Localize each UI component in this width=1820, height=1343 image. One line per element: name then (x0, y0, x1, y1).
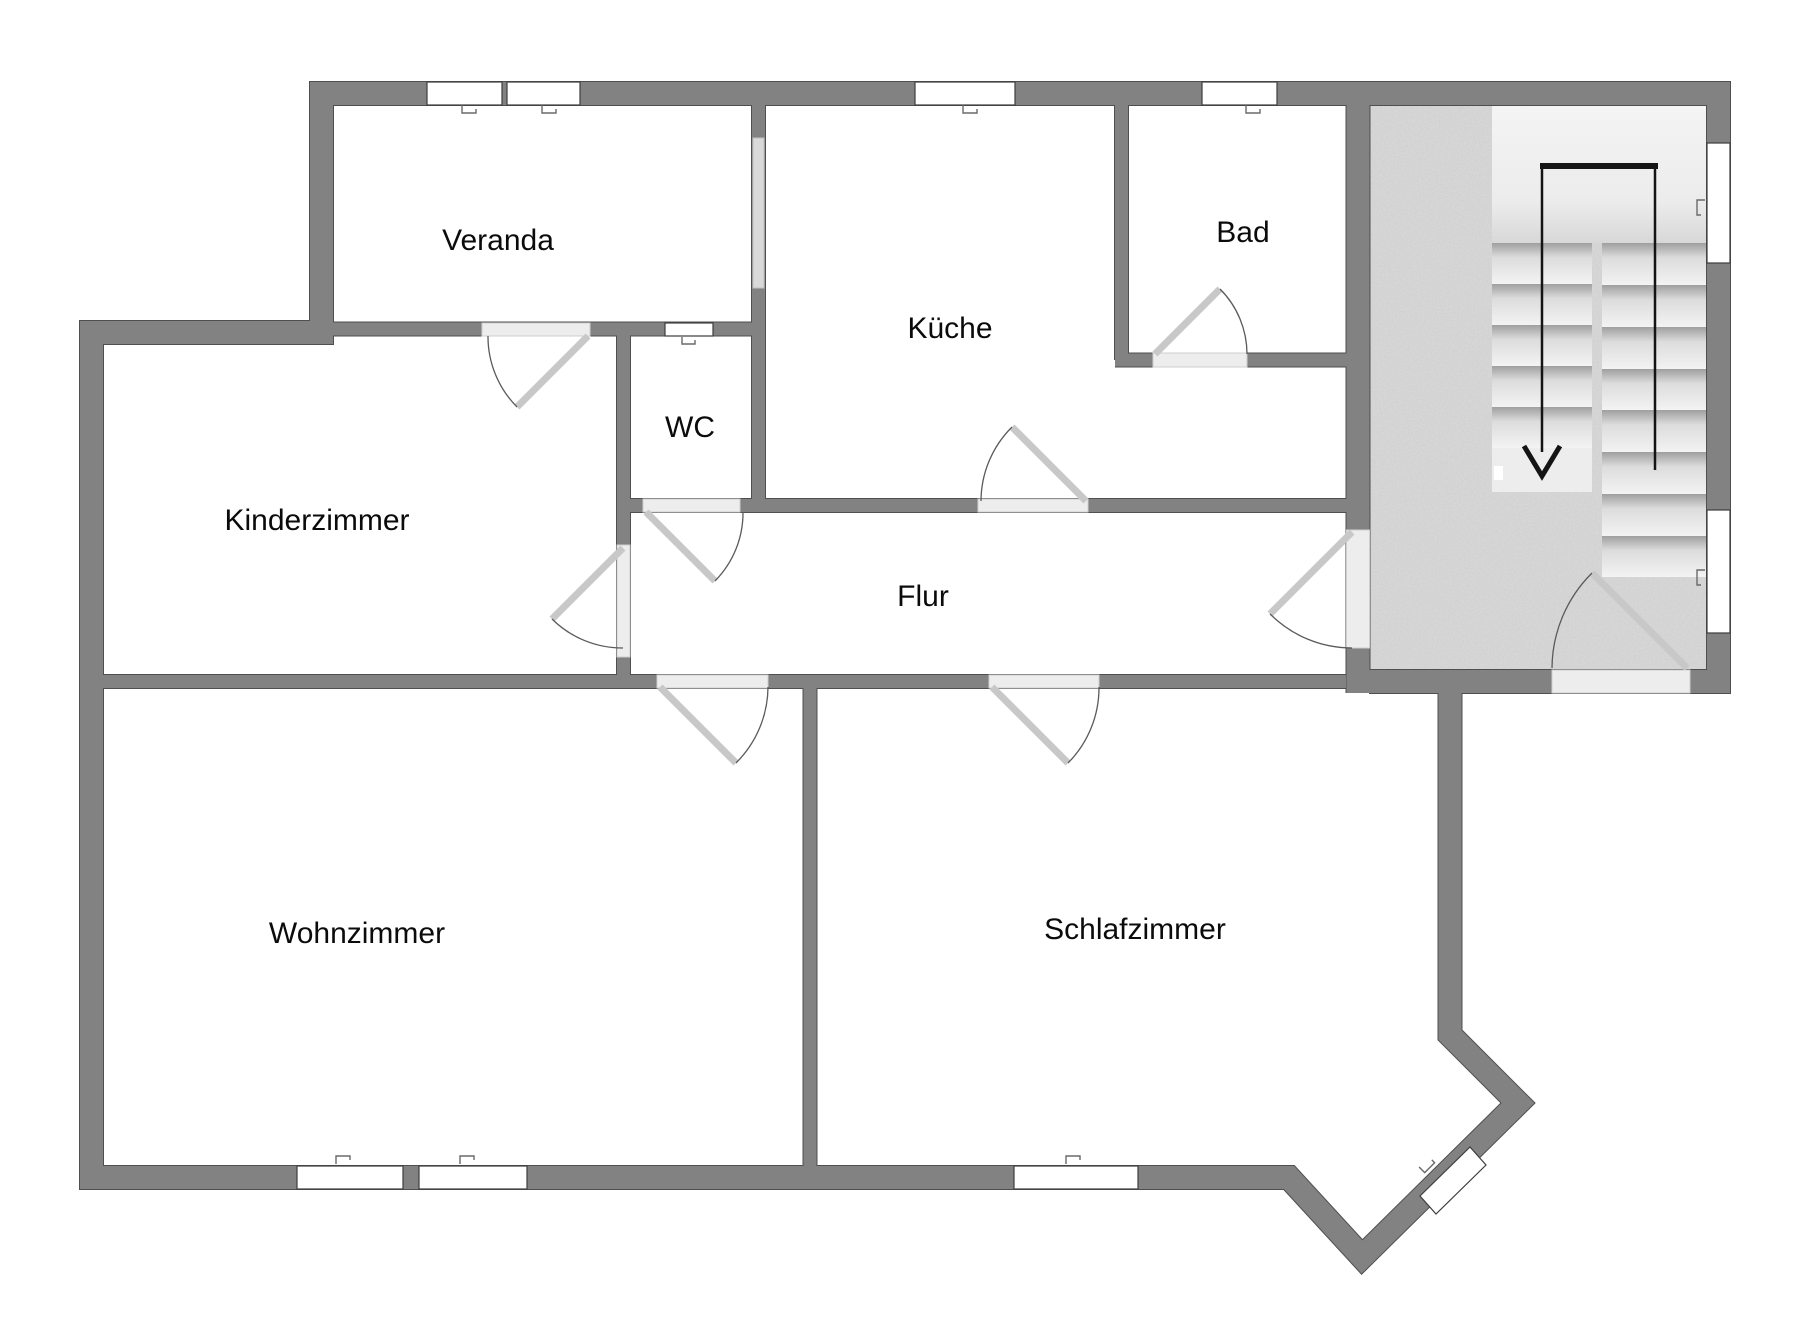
room-area-schlafzimmer (816, 688, 1501, 1236)
room-label-bad: Bad (1216, 216, 1269, 249)
room-label-kueche: Küche (907, 312, 992, 345)
window-stairwell-1 (1707, 143, 1730, 263)
room-label-flur: Flur (897, 580, 949, 613)
stair-upper-landing (1492, 104, 1706, 243)
window-bad (1202, 82, 1277, 105)
room-label-wohnzimmer: Wohnzimmer (269, 917, 445, 950)
room-label-veranda: Veranda (442, 224, 554, 257)
window-veranda-2 (507, 82, 580, 105)
window-kueche (915, 82, 1015, 105)
room-label-wc: WC (665, 411, 715, 444)
room-label-kinderzimmer: Kinderzimmer (224, 504, 409, 537)
window-wohnzimmer-1 (297, 1166, 403, 1189)
stair-start-marker (1494, 466, 1503, 480)
room-label-schlafzimmer: Schlafzimmer (1044, 913, 1226, 946)
stair-lower-landing (1492, 448, 1592, 492)
window-schlafzimmer (1014, 1166, 1138, 1189)
window-wc (665, 323, 713, 336)
glass-panel (753, 138, 764, 288)
room-area-wohnzimmer (103, 688, 804, 1166)
window-wohnzimmer-2 (419, 1166, 527, 1189)
room-area-flur (630, 512, 1346, 675)
window-veranda-1 (427, 82, 502, 105)
floorplan-drawing: Veranda Küche Bad WC Kinderzimmer Flur W… (0, 0, 1820, 1343)
stairwell (1369, 104, 1707, 670)
window-stairwell-2 (1707, 510, 1730, 633)
room-area-veranda (333, 104, 752, 323)
floorplan-canvas: Veranda Küche Bad WC Kinderzimmer Flur W… (0, 0, 1820, 1343)
